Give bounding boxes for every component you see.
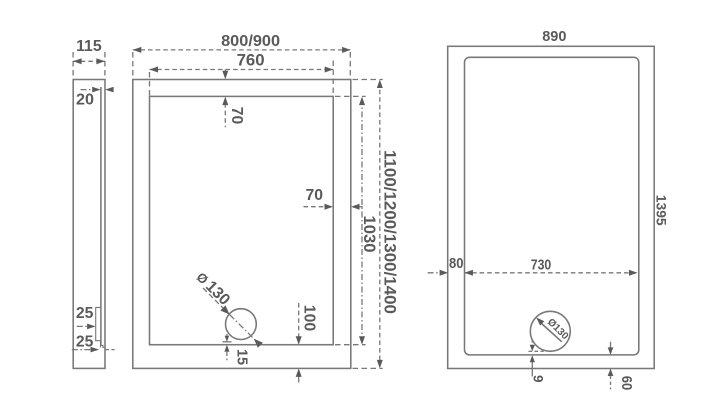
- svg-text:20: 20: [76, 92, 94, 109]
- svg-text:760: 760: [237, 52, 265, 70]
- svg-text:1395: 1395: [654, 195, 670, 226]
- svg-text:70: 70: [228, 107, 245, 125]
- svg-text:25: 25: [76, 305, 94, 322]
- svg-text:800/900: 800/900: [221, 33, 280, 50]
- svg-text:15: 15: [233, 349, 249, 365]
- svg-text:25: 25: [76, 333, 94, 350]
- svg-text:9: 9: [530, 375, 545, 383]
- svg-text:1030: 1030: [360, 216, 378, 253]
- svg-text:890: 890: [542, 29, 566, 45]
- svg-text:60: 60: [618, 376, 634, 391]
- svg-text:115: 115: [76, 38, 102, 55]
- svg-text:730: 730: [531, 257, 552, 273]
- svg-text:80: 80: [449, 255, 464, 272]
- svg-text:100: 100: [301, 305, 318, 332]
- svg-text:1100/1200/1300/1400: 1100/1200/1300/1400: [380, 150, 399, 314]
- svg-text:70: 70: [306, 187, 324, 204]
